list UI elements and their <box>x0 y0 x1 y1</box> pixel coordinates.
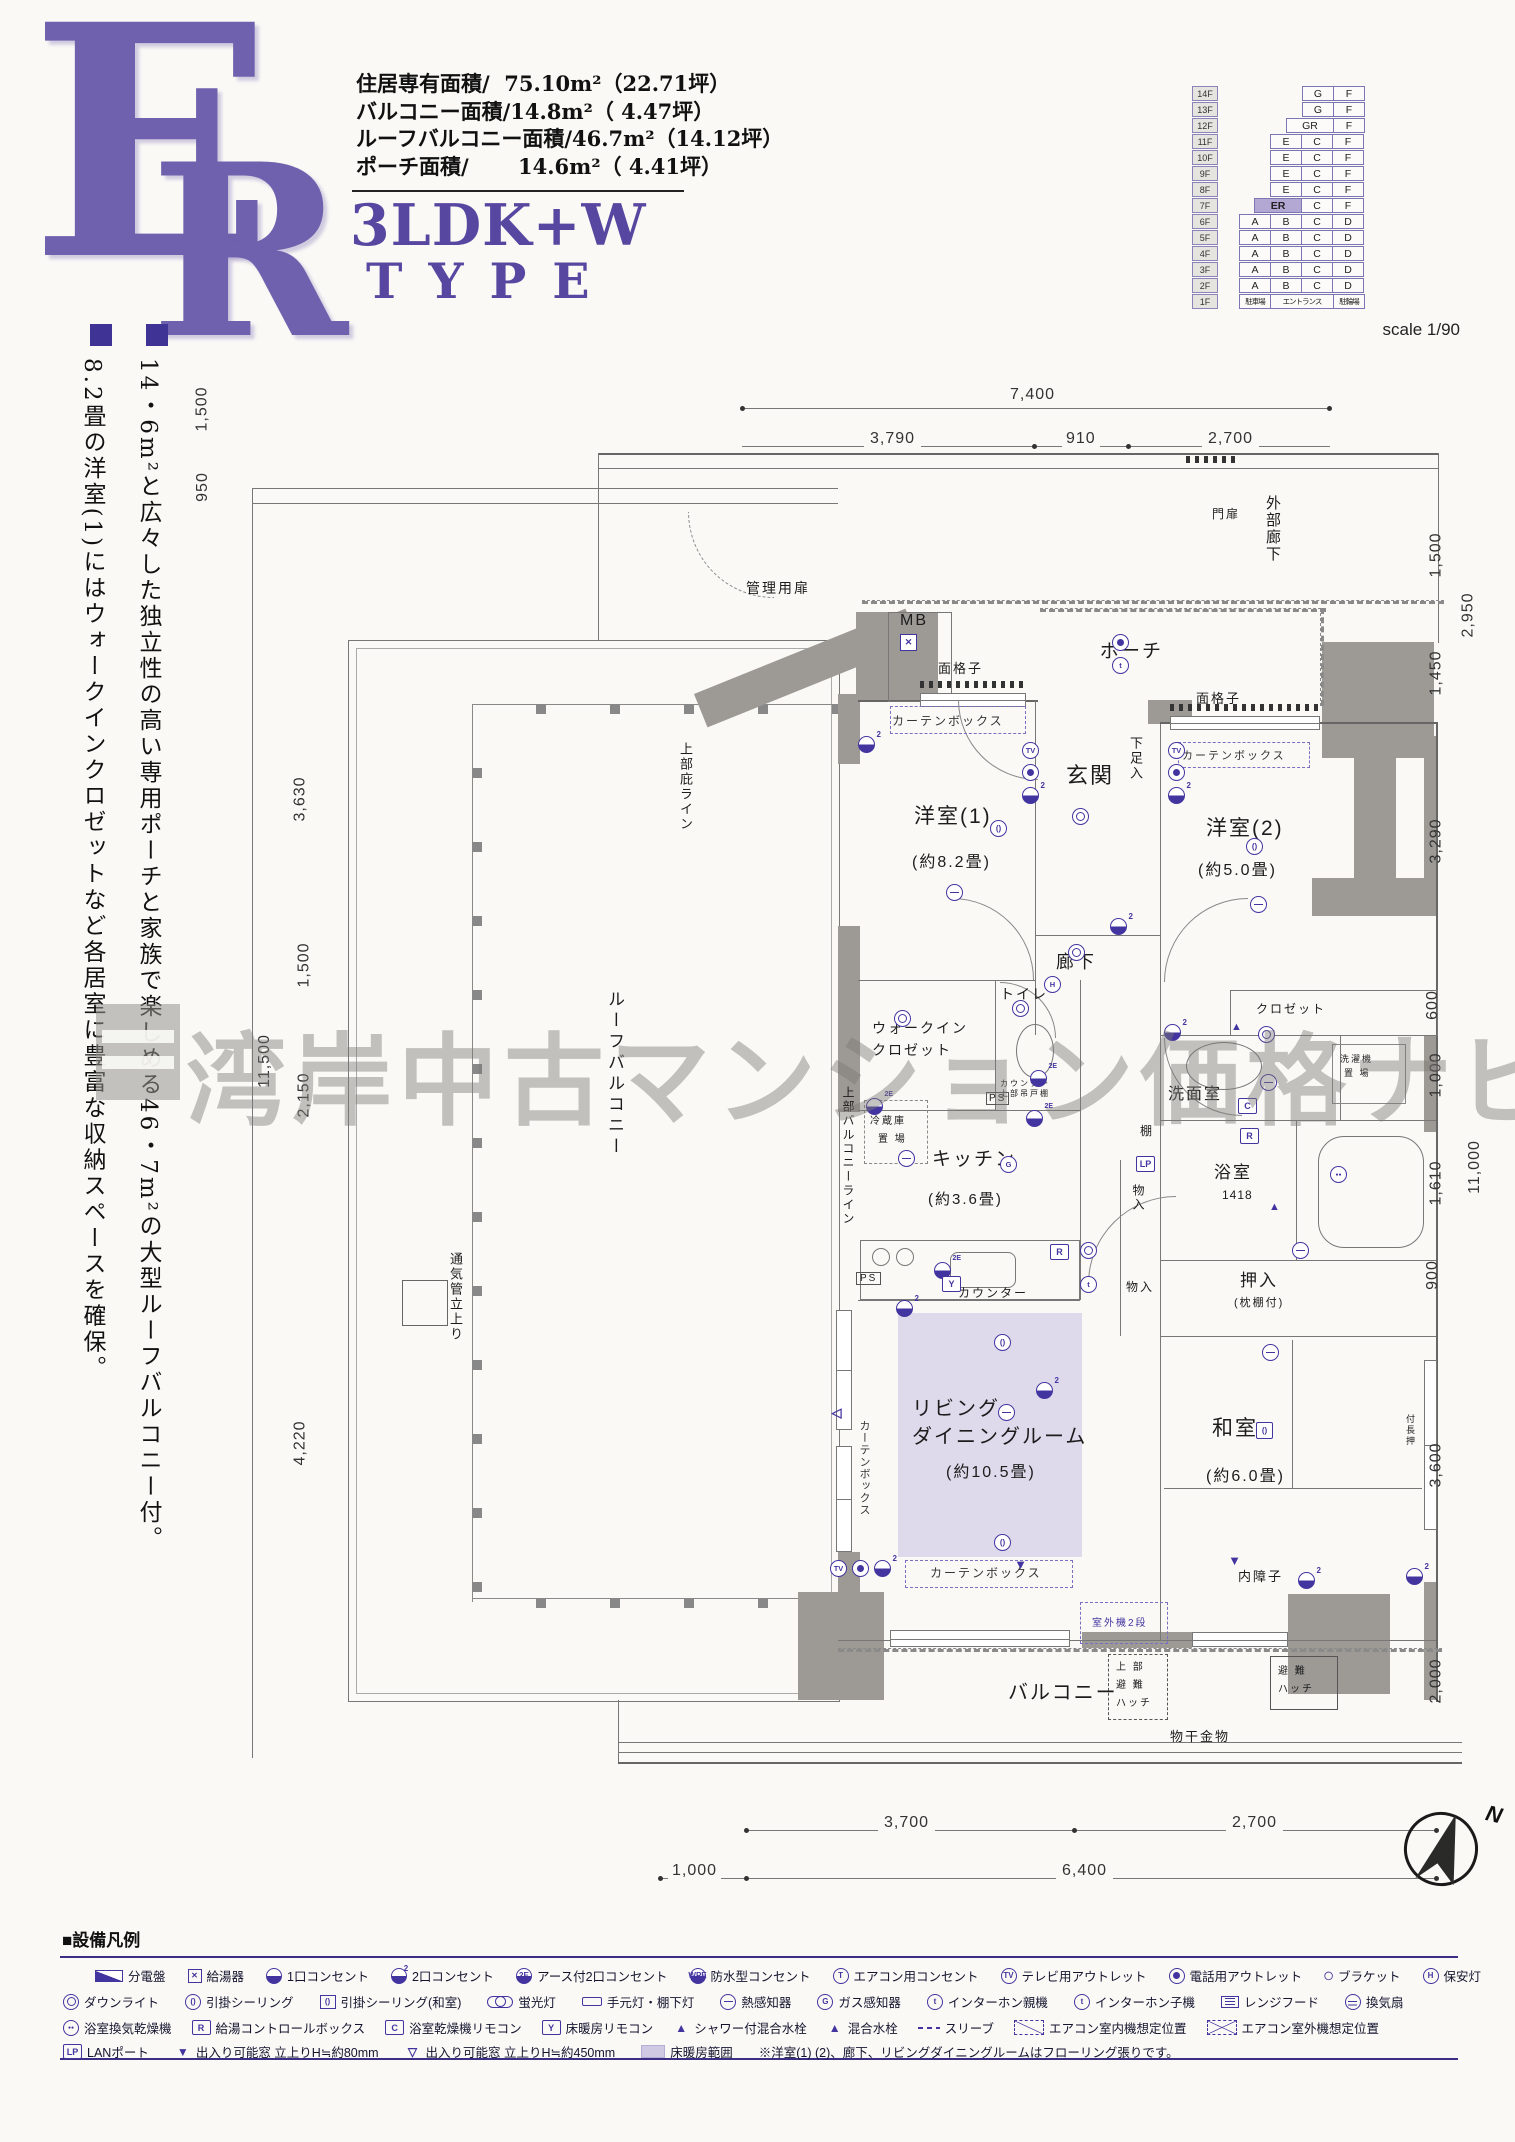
unit-cell: E <box>1270 150 1302 165</box>
unit-cell: C <box>1301 166 1333 181</box>
room-label: ハッチ <box>1278 1680 1314 1695</box>
unit-cell <box>1239 102 1303 117</box>
unit-cell: F <box>1333 86 1365 101</box>
equipment-symbol-icon: ▲ <box>1228 1018 1245 1035</box>
tatami-line <box>1164 1488 1422 1489</box>
legend-icon <box>63 1994 79 2010</box>
wall-segment <box>838 926 860 1112</box>
wall-segment <box>798 1592 884 1700</box>
room-label: PS <box>856 1272 881 1285</box>
legend-icon: TV <box>1001 1968 1017 1984</box>
dim-label: 3,600 <box>1428 1442 1446 1487</box>
dim-label: 4,220 <box>292 1420 310 1465</box>
dim-label: 1,610 <box>1428 1160 1446 1205</box>
equipment-symbol-icon: Y <box>942 1276 961 1292</box>
floor-label: 7F <box>1192 198 1218 213</box>
dim-label: 3,790 <box>864 430 921 448</box>
equipment-symbol-icon <box>1012 1000 1029 1017</box>
legend-label: テレビ用アウトレット <box>1022 1966 1147 1985</box>
balcony-fence <box>618 1700 619 1762</box>
legend-label: 給湯器 <box>207 1966 245 1985</box>
legend-icon: LP <box>63 2044 82 2059</box>
building-floor-row: 2F ABCD <box>1192 278 1365 294</box>
legend-row: ●● 浴室換気乾燥機 R 給湯コントロールボックス C 浴室乾燥機リモコン Y … <box>63 2018 1379 2037</box>
room-label: 室外機2段 <box>1092 1614 1148 1629</box>
stove-burner <box>872 1248 890 1266</box>
dim-label: 2,700 <box>1226 1814 1283 1832</box>
legend-icon: () <box>185 1994 201 2010</box>
equipment-symbol-icon <box>1262 1344 1279 1361</box>
legend-icon <box>266 1968 282 1984</box>
legend-item: C 浴室乾燥機リモコン <box>385 2018 522 2037</box>
legend-label: 電話用アウトレット <box>1190 1966 1303 1985</box>
room-label: 物入 <box>1130 1184 1147 1212</box>
legend-label: 給湯コントロールボックス <box>216 2018 366 2037</box>
legend-item: G ガス感知器 <box>817 1992 901 2011</box>
dim-line <box>660 1878 1436 1879</box>
room-label: 通気管立上り <box>446 1252 465 1342</box>
equipment-symbol-icon: () <box>990 820 1007 837</box>
room-label: 上 部 <box>1116 1658 1145 1673</box>
gate-hatch <box>1186 456 1238 463</box>
unit-cell: F <box>1332 150 1364 165</box>
legend-item: t インターホン親機 <box>927 1992 1048 2011</box>
plan-line <box>995 980 996 1110</box>
unit-cell: C <box>1301 150 1333 165</box>
compass: N <box>1389 1797 1493 1901</box>
room-label: 洗濯機 <box>1340 1052 1373 1065</box>
legend-label: 引掛シーリング(和室) <box>341 1992 462 2011</box>
unit-cell: A <box>1239 246 1271 261</box>
legend-label: ブラケット <box>1338 1966 1401 1985</box>
legend-icon: ✕ <box>188 1969 202 1983</box>
legend-item: ダウンライト <box>63 1992 159 2011</box>
floor-label: 5F <box>1192 230 1218 245</box>
building-floor-row: 7F ERCF <box>1192 198 1365 214</box>
vent-pipe-box <box>402 1280 448 1326</box>
equipment-symbol-icon <box>1036 1382 1053 1399</box>
equipment-symbol-icon <box>1168 764 1185 781</box>
legend-label: レンジフード <box>1244 1992 1319 2011</box>
room-label: ウォークイン <box>872 1018 968 1038</box>
bathtub-fixture <box>1318 1136 1424 1248</box>
equipment-symbol-icon <box>1072 808 1089 825</box>
dim-label: 1,000 <box>668 1862 721 1880</box>
legend-icon: G <box>817 1994 833 2010</box>
unit-cell: エントランス <box>1270 294 1334 309</box>
legend-item: スリーブ <box>918 2018 994 2037</box>
legend-label: ガス感知器 <box>838 1992 901 2011</box>
unit-cell: A <box>1239 262 1271 277</box>
legend-item: () 引掛シーリング(和室) <box>320 1992 462 2011</box>
stove-burner <box>896 1248 914 1266</box>
building-floor-row: 9F ECF <box>1192 166 1365 182</box>
equipment-symbol-icon <box>998 1404 1015 1421</box>
legend-item: ▼ 出入り可能窓 立上りH≒約80mm <box>175 2042 379 2061</box>
legend-item: エアコン室内機想定位置 <box>1014 2018 1187 2037</box>
dim-label: 11,500 <box>256 1034 274 1088</box>
legend-item: 換気扇 <box>1345 1992 1404 2011</box>
legend-label: エアコン用コンセント <box>854 1966 979 1985</box>
room-label: 物干金物 <box>1170 1726 1230 1745</box>
legend-label: 引掛シーリング <box>206 1992 294 2011</box>
building-floor-row: 3F ABCD <box>1192 262 1365 278</box>
room-label: 玄関 <box>1066 758 1114 790</box>
unit-cell: F <box>1333 118 1365 133</box>
equipment-symbol-icon <box>896 1300 913 1317</box>
window <box>890 1630 1070 1647</box>
unit-cell: C <box>1301 134 1333 149</box>
equipment-symbol-icon <box>1260 1074 1277 1091</box>
unit-cell <box>1239 182 1271 197</box>
room-label: 上部庇ライン <box>676 742 695 832</box>
dim-label: 6,400 <box>1056 1862 1113 1880</box>
room-label: カウンター <box>958 1284 1028 1301</box>
legend-icon <box>391 1968 407 1984</box>
legend-icon: t <box>927 1994 943 2010</box>
building-floor-row: 1F 駐車場エントランス駐輪場 <box>1192 294 1365 310</box>
porch-dashed <box>1040 608 1326 612</box>
room-label: ルーフバルコニー <box>602 990 627 1158</box>
legend-item: レンジフード <box>1221 1992 1319 2011</box>
unit-cell: 駐輪場 <box>1333 294 1365 309</box>
legend-label: インターホン子機 <box>1095 1992 1195 2011</box>
legend-item: H 保安灯 <box>1423 1966 1482 1985</box>
dim-tick <box>1032 444 1037 449</box>
unit-cell: D <box>1332 278 1364 293</box>
floor-label: 2F <box>1192 278 1218 293</box>
unit-cell: A <box>1239 214 1271 229</box>
room-label: 外部廊下 <box>1262 495 1283 563</box>
dim-label: 2,000 <box>1428 1658 1446 1703</box>
unit-cell: C <box>1301 198 1333 213</box>
unit-cell: C <box>1301 182 1333 197</box>
dim-tick <box>1072 1828 1077 1833</box>
legend-item: 手元灯・棚下灯 <box>582 1992 695 2011</box>
legend-label: 防水型コンセント <box>711 1966 811 1985</box>
legend-icon: ◯ <box>1324 1971 1333 1980</box>
intro-bullet-square-2 <box>90 324 112 346</box>
plan-line <box>858 980 1035 981</box>
legend-item: LP LANポート <box>63 2042 149 2061</box>
unit-cell: GR <box>1286 118 1334 133</box>
legend-icon: H <box>1423 1968 1439 1984</box>
legend-label: 熱感知器 <box>741 1992 791 2011</box>
equipment-symbol-icon: ▲ <box>1266 1198 1283 1215</box>
plan-line <box>1160 1120 1436 1121</box>
room-label: カーテンボックス <box>856 1420 872 1516</box>
room-label: 付長押 <box>1404 1414 1417 1447</box>
window-grille-hatch <box>920 681 1026 688</box>
legend-icon: 2E <box>516 1968 532 1984</box>
dim-tick <box>1126 444 1131 449</box>
balcony-fence <box>618 1752 1462 1753</box>
legend-icon: () <box>320 1995 336 2009</box>
unit-cell: B <box>1270 214 1302 229</box>
balcony-dashed <box>838 1648 1442 1652</box>
equipment-symbol-icon: ●● <box>1330 1166 1347 1183</box>
eaves-line <box>252 488 253 1758</box>
equipment-symbol-icon <box>858 736 875 753</box>
legend-icon: ▽ <box>405 2045 421 2059</box>
legend-item: 2口コンセント <box>391 1966 494 1985</box>
room-label: 洋室(1) <box>914 800 992 830</box>
floor-label: 11F <box>1192 134 1218 149</box>
room-label: リビング <box>912 1392 1000 1421</box>
unit-cell <box>1239 118 1287 133</box>
legend-item: 1口コンセント <box>266 1966 369 1985</box>
building-floor-row: 13F GF <box>1192 102 1365 118</box>
unit-cell: ER <box>1254 198 1302 213</box>
legend-label: 出入り可能窓 立上りH≒約450mm <box>426 2042 616 2061</box>
legend-label: インターホン親機 <box>948 1992 1048 2011</box>
unit-cell: C <box>1301 246 1333 261</box>
wall-segment <box>1312 878 1438 916</box>
unit-cell: D <box>1332 214 1364 229</box>
unit-cell: E <box>1270 182 1302 197</box>
legend-label: アース付2口コンセント <box>537 1966 668 1985</box>
equipment-symbol-icon <box>874 1560 891 1577</box>
legend-icon: ▲ <box>827 2021 843 2035</box>
dim-label: 1,500 <box>296 942 314 987</box>
legend-icon <box>95 1970 123 1982</box>
equipment-symbol-icon <box>1026 1110 1043 1127</box>
legend-item: ✕ 給湯器 <box>188 1966 245 1985</box>
scale-note: scale 1/90 <box>1330 320 1460 340</box>
floor-label: 9F <box>1192 166 1218 181</box>
roof-balcony-railing <box>472 704 838 714</box>
building-floor-row: 14F GF <box>1192 86 1365 102</box>
equipment-symbol-icon: () <box>994 1334 1011 1351</box>
unit-cell <box>1239 198 1255 213</box>
unit-cell <box>1239 86 1303 101</box>
plan-line <box>252 488 838 489</box>
legend-item: WPE 防水型コンセント <box>690 1966 811 1985</box>
plan-type-word: TYPE <box>366 252 616 310</box>
unit-cell: G <box>1302 86 1334 101</box>
unit-cell: F <box>1332 134 1364 149</box>
dim-label: 1,500 <box>1428 532 1446 577</box>
balcony-fence <box>618 1762 1462 1764</box>
plan-line <box>598 453 1438 455</box>
legend-item: ●● 浴室換気乾燥機 <box>63 2018 172 2037</box>
room-label: 避 難 <box>1278 1662 1307 1677</box>
unit-cell: E <box>1270 166 1302 181</box>
room-label: ポーチ <box>1100 636 1163 663</box>
unit-cell: E <box>1270 134 1302 149</box>
room-label: (枕棚付) <box>1234 1294 1284 1310</box>
corridor-boundary-dashed <box>862 600 1444 604</box>
equipment-symbol-icon: H <box>1044 976 1061 993</box>
equipment-symbol-icon: () <box>1256 1422 1273 1439</box>
legend-row: ダウンライト () 引掛シーリング () 引掛シーリング(和室) 蛍光灯 手元灯… <box>63 1992 1403 2011</box>
equipment-symbol-icon <box>1030 1070 1047 1087</box>
room-label: (約10.5畳) <box>946 1458 1036 1482</box>
legend-label: 出入り可能窓 立上りH≒約80mm <box>196 2042 379 2061</box>
legend-label: エアコン室内機想定位置 <box>1049 2018 1187 2037</box>
legend-icon <box>1221 1996 1239 2008</box>
equipment-symbol-icon: ✕ <box>900 634 917 651</box>
dim-label: 2,700 <box>1202 430 1259 448</box>
legend-label: 1口コンセント <box>287 1966 369 1985</box>
equipment-symbol-icon <box>1080 1242 1097 1259</box>
dim-label: 910 <box>1062 430 1100 448</box>
legend-icon: C <box>385 2020 404 2035</box>
legend-icon: ▲ <box>673 2021 689 2035</box>
window <box>1170 716 1320 730</box>
wall-segment <box>1322 642 1434 758</box>
floor-label: 12F <box>1192 118 1218 133</box>
balcony-fence <box>618 1742 1462 1743</box>
legend-icon <box>918 2025 940 2031</box>
equipment-symbol-icon <box>1022 787 1039 804</box>
legend-icon: t <box>1074 1994 1090 2010</box>
roof-balcony-railing <box>472 1598 838 1608</box>
room-label: 下足入 <box>1126 736 1145 781</box>
legend-label: 2口コンセント <box>412 1966 494 1985</box>
unit-cell: C <box>1301 230 1333 245</box>
dim-label: 3,630 <box>292 776 310 821</box>
room-label: 置 場 <box>878 1130 907 1145</box>
legend-item: 蛍光灯 <box>487 1992 556 2011</box>
dim-label: 7,400 <box>1010 386 1055 404</box>
room-label: カーテンボックス <box>892 712 1004 729</box>
legend-label: 床暖房リモコン <box>566 2018 654 2037</box>
equipment-symbol-icon <box>1164 1024 1181 1041</box>
unit-cell: B <box>1270 278 1302 293</box>
legend-item: () 引掛シーリング <box>185 1992 294 2011</box>
legend-label: 手元灯・棚下灯 <box>607 1992 695 2011</box>
room-label: MB <box>900 612 928 630</box>
legend-label: 蛍光灯 <box>518 1992 556 2011</box>
plan-line <box>598 453 599 640</box>
area-spec-text: 住居専有面積/ 75.10m²（22.71坪） バルコニー面積/14.8m²（ … <box>356 70 716 180</box>
equipment-symbol-icon: ▼ <box>1012 1556 1029 1573</box>
equipment-symbol-icon: t <box>1112 657 1129 674</box>
room-label: 和室 <box>1212 1412 1258 1442</box>
equipment-symbol-icon: ▼ <box>1226 1552 1243 1569</box>
legend-item: ▲ 混合水栓 <box>827 2018 898 2037</box>
room-label: PS <box>986 1092 1009 1105</box>
legend-icon: Y <box>542 2020 561 2035</box>
equipment-symbol-icon <box>1406 1568 1423 1585</box>
plan-line <box>252 503 838 504</box>
legend-icon: ●● <box>63 2020 79 2036</box>
dim-tick <box>740 406 745 411</box>
equipment-symbol-icon: () <box>994 1534 1011 1551</box>
equipment-symbol-icon <box>1068 944 1085 961</box>
room-label: 面格子 <box>938 658 983 677</box>
compass-n-label: N <box>1483 1800 1505 1829</box>
legend-item: TV テレビ用アウトレット <box>1001 1966 1147 1985</box>
equipment-symbol-icon: () <box>1246 838 1263 855</box>
unit-cell <box>1239 134 1271 149</box>
dim-label: 900 <box>1424 1260 1442 1290</box>
unit-cell: B <box>1270 246 1302 261</box>
legend-item: ※洋室(1) (2)、廊下、リビングダイニングルームはフローリング張りです。 <box>759 2042 1179 2061</box>
building-floor-row: 12F GRF <box>1192 118 1365 134</box>
legend-item: ▲ シャワー付混合水栓 <box>673 2018 807 2037</box>
building-floor-row: 4F ABCD <box>1192 246 1365 262</box>
legend-label: シャワー付混合水栓 <box>694 2018 807 2037</box>
dim-label: 600 <box>1424 990 1442 1020</box>
watermark-logo <box>96 1004 180 1100</box>
plan-line <box>1160 1336 1436 1337</box>
equipment-symbol-icon <box>894 1010 911 1027</box>
unit-cell: C <box>1301 278 1333 293</box>
room-label: 物入 <box>1126 1278 1154 1295</box>
unit-cell: C <box>1301 214 1333 229</box>
equipment-symbol-icon <box>1258 1026 1275 1043</box>
equipment-symbol-icon <box>1112 634 1129 651</box>
legend-label: ダウンライト <box>84 1992 159 2011</box>
legend-label: 保安灯 <box>1444 1966 1482 1985</box>
legend-icon <box>582 1997 602 2006</box>
legend-item: ◯ ブラケット <box>1324 1966 1400 1985</box>
wall-segment <box>838 694 860 764</box>
legend-label: LANポート <box>87 2042 149 2061</box>
legend-icon <box>641 2045 665 2058</box>
building-floor-row: 8F ECF <box>1192 182 1365 198</box>
plan-type-title: 3LDK+W <box>350 192 646 259</box>
legend-item: エアコン室外機想定位置 <box>1207 2018 1380 2037</box>
room-label: 洗面室 <box>1168 1080 1222 1104</box>
building-stack-diagram: 14F GF 13F GF 12F GRF 11F ECF 10F ECF <box>1192 86 1365 310</box>
room-label: (約5.0畳) <box>1198 856 1277 880</box>
window <box>836 1446 852 1552</box>
legend-icon: ▼ <box>175 2045 191 2059</box>
room-label: 1418 <box>1222 1188 1253 1202</box>
dim-line <box>746 1830 1436 1831</box>
dim-label: 2,150 <box>296 1072 314 1117</box>
plan-line <box>1035 935 1160 936</box>
room-label: 洋室(2) <box>1206 812 1284 842</box>
dim-label: 3,290 <box>1428 818 1446 863</box>
legend-label: 換気扇 <box>1366 1992 1404 2011</box>
legend-item: T エアコン用コンセント <box>833 1966 979 1985</box>
plan-line <box>1160 1260 1436 1261</box>
legend-row: 分電盤 ✕ 給湯器 1口コンセント 2口コンセント 2E アース付2口コンセント… <box>95 1966 1481 1985</box>
plan-line <box>1296 1120 1297 1260</box>
legend-icon <box>487 1996 513 2008</box>
legend-item: 熱感知器 <box>720 1992 791 2011</box>
unit-cell: A <box>1239 230 1271 245</box>
unit-cell: B <box>1270 262 1302 277</box>
equipment-symbol-icon <box>898 1150 915 1167</box>
floor-label: 6F <box>1192 214 1218 229</box>
legend-item: t インターホン子機 <box>1074 1992 1195 2011</box>
room-label: 避 難 <box>1116 1676 1145 1691</box>
room-label: 門扉 <box>1212 505 1240 522</box>
roof-balcony-railing <box>472 704 482 1602</box>
equipment-symbol-icon: TV <box>1022 742 1039 759</box>
unit-cell: F <box>1332 198 1364 213</box>
unit-cell: F <box>1332 182 1364 197</box>
legend-row: LP LANポート ▼ 出入り可能窓 立上りH≒約80mm ▽ 出入り可能窓 立… <box>63 2042 1179 2061</box>
window <box>1192 1632 1288 1647</box>
legend-label: 浴室換気乾燥機 <box>84 2018 172 2037</box>
legend-item: R 給湯コントロールボックス <box>192 2018 366 2037</box>
building-floor-row: 5F ABCD <box>1192 230 1365 246</box>
equipment-symbol-icon: G <box>1000 1156 1017 1173</box>
floorplan-page: E R 住居専有面積/ 75.10m²（22.71坪） バルコニー面積/14.8… <box>0 0 1515 2142</box>
plan-line <box>1160 722 1161 1640</box>
equipment-symbol-icon: t <box>1080 1276 1097 1293</box>
floor-label: 3F <box>1192 262 1218 277</box>
dim-tick <box>1327 406 1332 411</box>
equipment-symbol-icon: TV <box>1168 742 1185 759</box>
dim-tick <box>744 1876 749 1881</box>
